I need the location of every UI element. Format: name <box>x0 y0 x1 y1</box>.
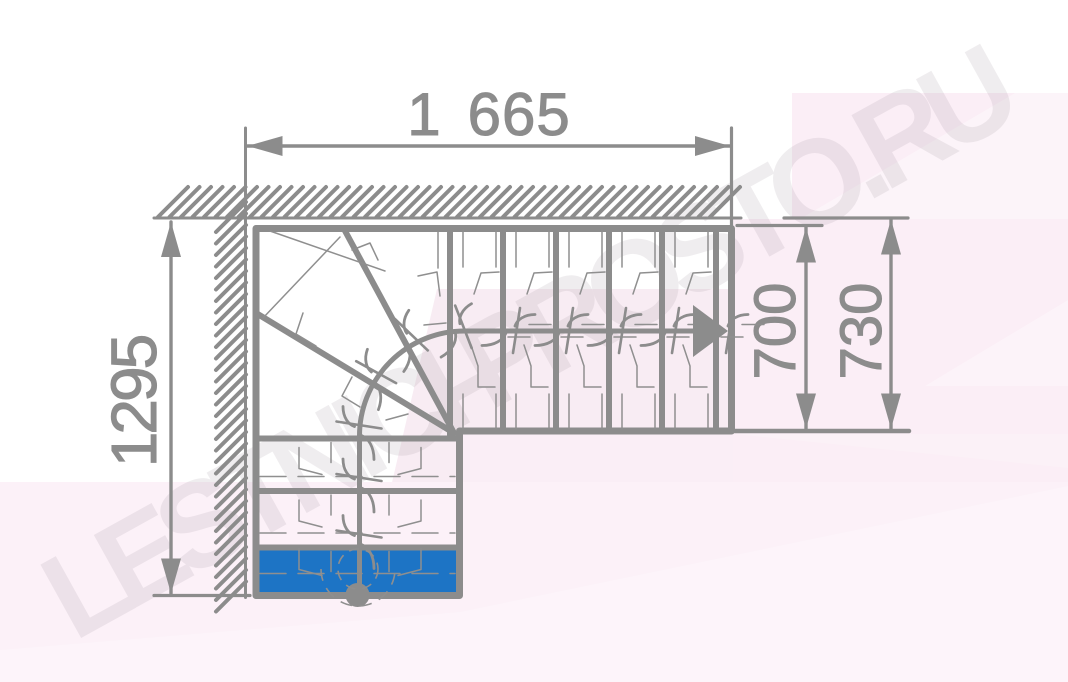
svg-text:700: 700 <box>743 283 808 380</box>
svg-text:730: 730 <box>829 283 894 380</box>
svg-text:1295: 1295 <box>98 336 170 467</box>
svg-text:1 665: 1 665 <box>407 81 571 148</box>
